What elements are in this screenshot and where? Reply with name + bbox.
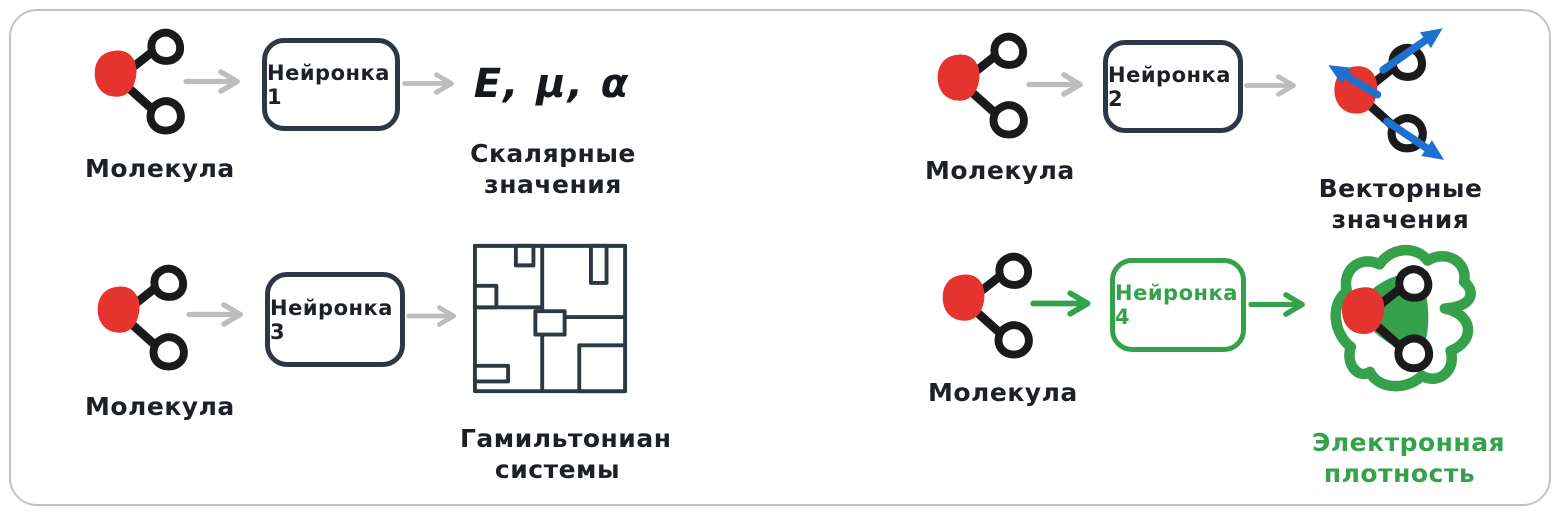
neural-net-box-1-label: Нейронка 1: [267, 61, 395, 109]
neural-net-box-3: Нейронка 3: [265, 272, 405, 367]
arrow-right-icon: [406, 303, 464, 329]
hamiltonian-output-label: Гамильтониан системы: [460, 424, 655, 485]
neural-net-box-4: Нейронка 4: [1110, 258, 1246, 352]
arrow-right-icon: [402, 70, 462, 97]
molecule-icon: [940, 250, 1035, 361]
molecule-label: Молекула: [925, 156, 1070, 185]
arrow-right-icon: [183, 67, 249, 96]
hamiltonian-matrix-icon: [472, 242, 628, 395]
molecule-label: Молекула: [85, 392, 230, 421]
neural-net-box-2: Нейронка 2: [1103, 40, 1243, 133]
molecule-icon: [95, 262, 190, 373]
molecule-icon: [935, 30, 1030, 141]
vector-molecule-icon: [1324, 24, 1472, 172]
neural-net-box-2-label: Нейронка 2: [1108, 63, 1238, 111]
density-output-label: Электронная плотность: [1312, 428, 1487, 489]
neural-net-box-3-label: Нейронка 3: [270, 296, 400, 344]
arrow-right-icon: [1244, 72, 1304, 99]
scalar-formula: E, μ, α: [472, 54, 632, 114]
neural-net-box-4-label: Нейронка 4: [1115, 281, 1241, 329]
molecule-label: Молекула: [928, 378, 1073, 407]
scalar-output-label: Скалярные значения: [468, 139, 638, 200]
arrow-right-icon: [1248, 290, 1314, 319]
vector-output-label: Векторные значения: [1318, 174, 1483, 235]
molecule-icon: [92, 26, 187, 137]
arrow-right-icon: [1030, 288, 1100, 319]
diagram-canvas: { "title_hint": "Neural networks predict…: [0, 0, 1560, 515]
arrow-right-icon: [1026, 70, 1092, 99]
neural-net-box-1: Нейронка 1: [262, 38, 400, 131]
molecule-label: Молекула: [85, 154, 230, 183]
arrow-right-icon: [186, 300, 252, 329]
electron-density-icon: [1322, 242, 1490, 400]
